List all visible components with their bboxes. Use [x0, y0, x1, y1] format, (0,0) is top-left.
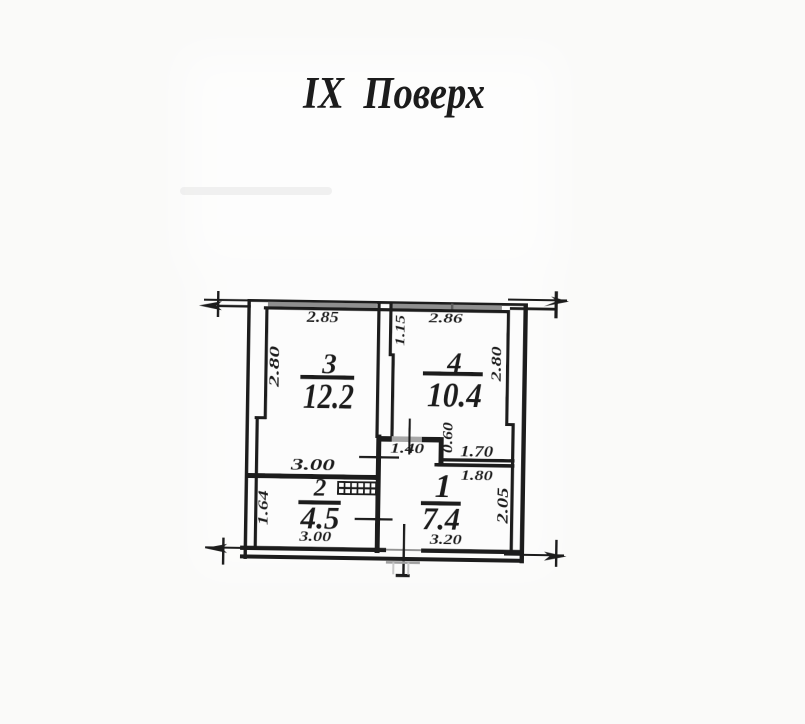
svg-text:2: 2	[313, 475, 327, 502]
svg-text:12.2: 12.2	[303, 376, 355, 417]
svg-text:3.00: 3.00	[298, 529, 332, 546]
svg-text:4: 4	[446, 347, 462, 379]
svg-text:0.60: 0.60	[440, 421, 456, 453]
svg-text:1.80: 1.80	[461, 468, 494, 485]
svg-text:1.70: 1.70	[460, 443, 493, 461]
svg-text:2.80: 2.80	[267, 345, 284, 389]
svg-text:1.40: 1.40	[390, 441, 425, 458]
svg-text:2.80: 2.80	[489, 346, 506, 383]
svg-text:1.64: 1.64	[255, 489, 272, 525]
svg-text:1.15: 1.15	[393, 315, 408, 346]
svg-text:2.85: 2.85	[305, 309, 338, 327]
svg-text:3.00: 3.00	[289, 455, 336, 475]
svg-text:IX Поверх: IX Поверх	[302, 68, 485, 118]
svg-text:3.20: 3.20	[428, 532, 462, 549]
svg-text:2.05: 2.05	[495, 487, 513, 525]
svg-text:10.4: 10.4	[427, 375, 483, 415]
svg-text:2.86: 2.86	[427, 311, 463, 327]
